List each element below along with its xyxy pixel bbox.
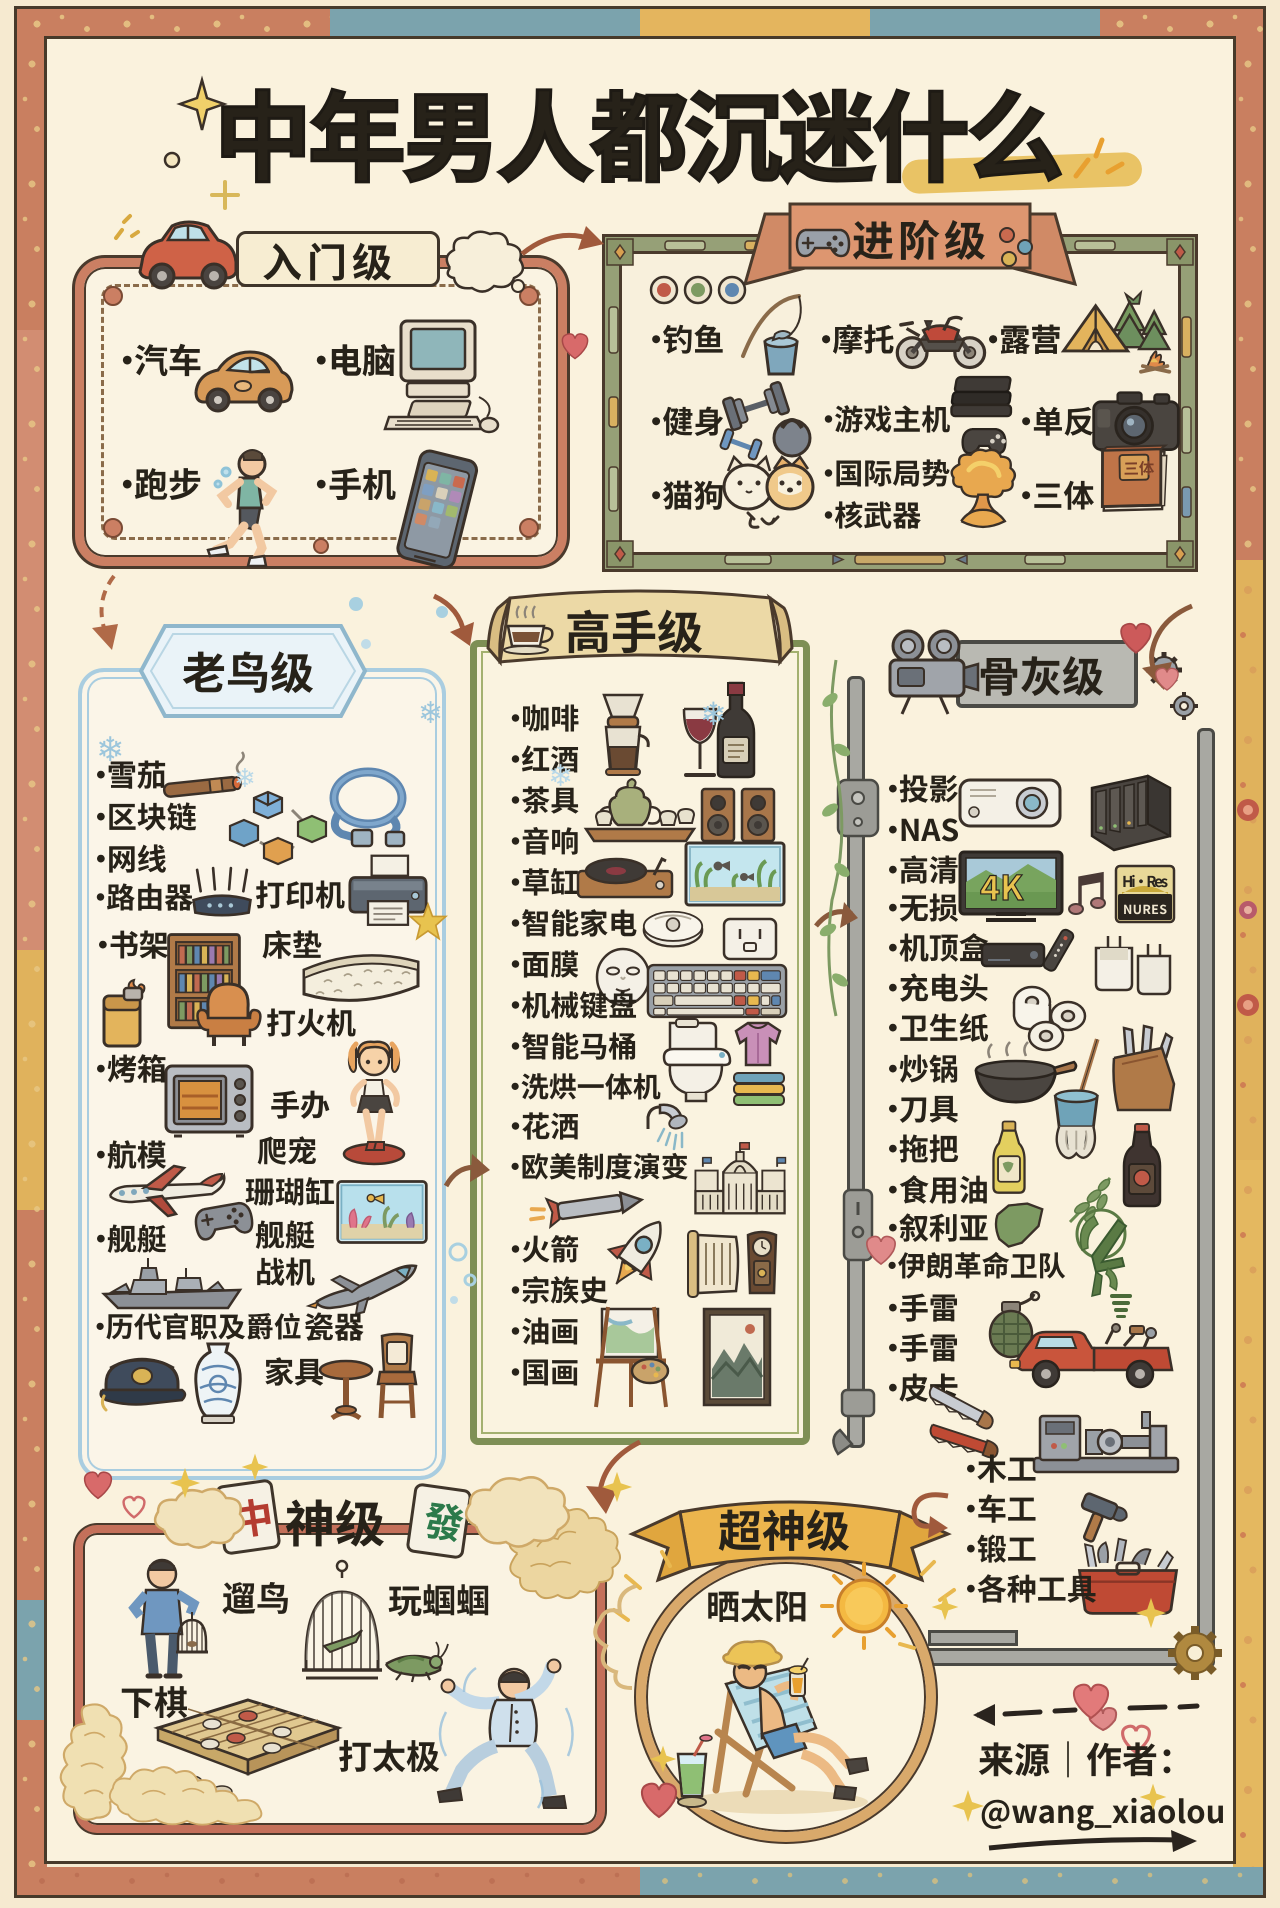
- svg-text:Hi·Res: Hi·Res: [1122, 871, 1168, 892]
- svg-text:NURES: NURES: [1123, 899, 1167, 918]
- svg-text:4K: 4K: [980, 861, 1024, 910]
- svg-text:三体: 三体: [1123, 457, 1155, 480]
